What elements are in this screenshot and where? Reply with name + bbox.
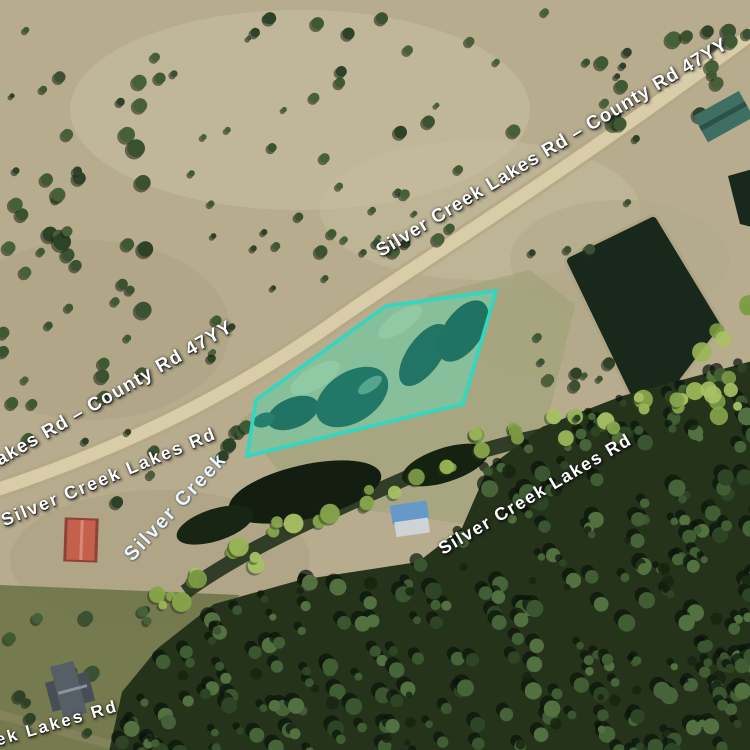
building-red-roof <box>63 517 99 562</box>
satellite-imagery <box>0 0 750 750</box>
map-canvas[interactable]: Silver Creek Lakes Rd – County Rd 47YY L… <box>0 0 750 750</box>
building-blue-roof <box>390 501 431 538</box>
